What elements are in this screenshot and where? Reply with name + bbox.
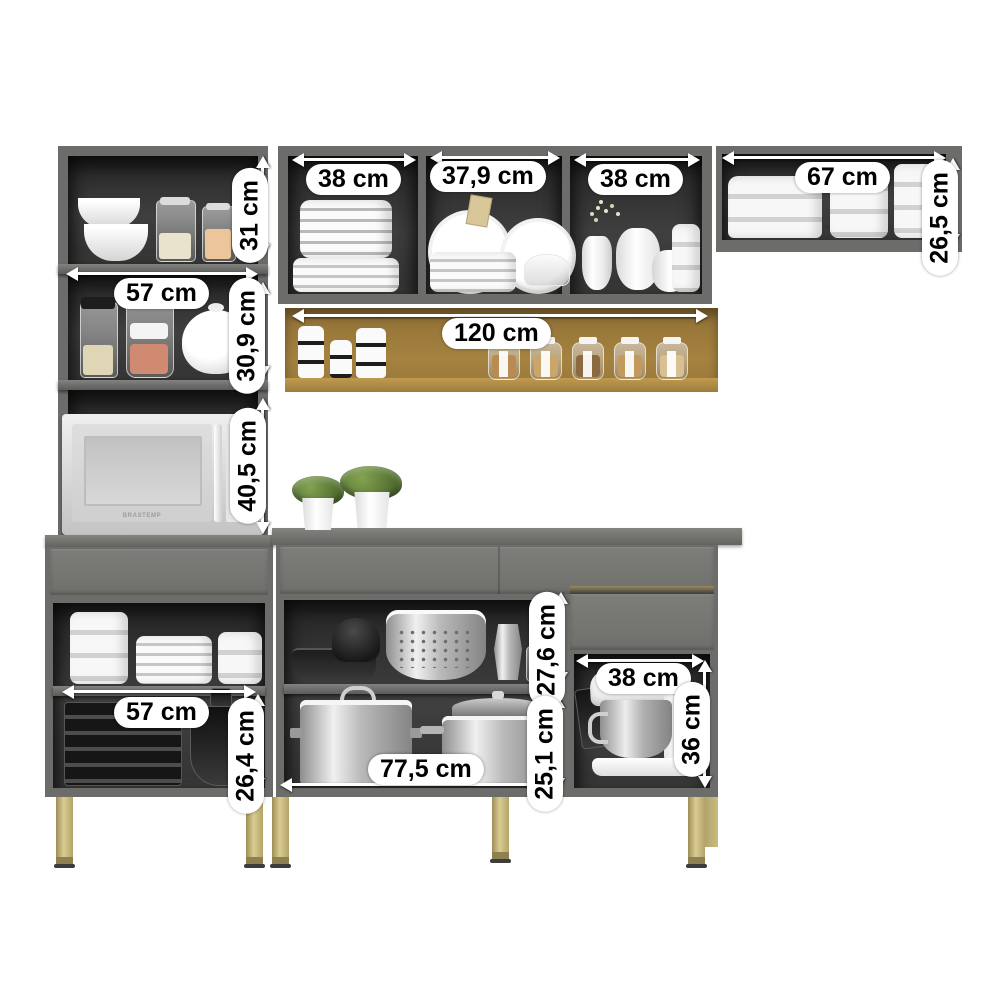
dimension-label: 40,5 cm <box>230 408 266 524</box>
microwave-window <box>84 436 202 506</box>
spice-jar <box>656 342 688 380</box>
jar-lid <box>206 203 230 210</box>
ruffled-bowl-stack <box>300 200 392 258</box>
canister-contents <box>130 344 168 374</box>
dimension-arrow <box>588 659 692 662</box>
plate-stack <box>293 258 399 292</box>
teapot-lid <box>208 303 224 312</box>
spice-label <box>625 351 634 377</box>
spice-jar-lid <box>663 337 681 344</box>
citrus-juicer <box>332 618 380 662</box>
wooden-shelf-board <box>285 378 718 392</box>
leg-foot <box>244 864 265 868</box>
spice-label <box>541 351 550 377</box>
microwave-brand-text: BRASTEMP <box>72 513 212 519</box>
jar-lid <box>160 197 190 205</box>
right-drawer-front <box>570 594 714 650</box>
dimension-arrow <box>304 314 696 317</box>
striped-canister <box>298 326 324 378</box>
base-middle-shelf <box>284 684 562 694</box>
striped-canister <box>330 340 352 378</box>
left-base-drawer-front <box>50 549 268 595</box>
dimension-label: 38 cm <box>306 164 401 195</box>
gold-leg <box>492 797 509 852</box>
stand-mixer-bowl <box>600 700 672 758</box>
dimension-label: 25,1 cm <box>527 696 563 812</box>
plant-pot <box>300 498 336 530</box>
butter-dish <box>524 254 570 286</box>
main-countertop <box>272 528 742 545</box>
plate-stack <box>430 252 516 292</box>
dimension-label: 31 cm <box>232 168 268 263</box>
jar-contents <box>205 229 231 259</box>
leg-foot <box>686 864 707 868</box>
leg-foot <box>490 859 511 863</box>
pot-handle <box>290 728 302 738</box>
jar-contents <box>159 233 191 259</box>
storage-jar <box>156 200 196 262</box>
leg-cap <box>246 857 263 864</box>
leg-cap <box>56 857 73 864</box>
spice-label <box>583 351 592 377</box>
dimension-label: 67 cm <box>795 162 890 193</box>
spice-jar-lid <box>579 337 597 344</box>
jar-contents <box>83 345 113 375</box>
microwave-door: BRASTEMP <box>72 424 212 522</box>
canister-band <box>130 323 168 339</box>
gold-leg <box>272 797 289 857</box>
lid-knob <box>492 691 504 699</box>
dimension-label: 26,4 cm <box>228 698 264 814</box>
dimension-label: 30,9 cm <box>229 278 265 394</box>
spice-label <box>667 351 676 377</box>
dimension-arrow <box>78 272 246 275</box>
dimension-arrow <box>304 158 404 161</box>
microwave-door-handle <box>214 424 222 522</box>
dimension-label: 120 cm <box>442 318 551 349</box>
kitchen-cabinet-product-image: BRASTEMP <box>0 0 1000 1000</box>
stand-mixer-bowl-handle <box>588 712 608 744</box>
colander <box>386 610 486 680</box>
spice-jar-lid <box>621 337 639 344</box>
plant-pot <box>352 492 392 528</box>
colander-holes <box>396 628 476 668</box>
dimension-arrow <box>74 690 244 693</box>
white-bowl-stack <box>70 612 128 684</box>
pasta-jar <box>80 302 118 378</box>
gold-leg <box>56 797 73 857</box>
gold-leg <box>688 797 705 857</box>
dimension-label: 37,9 cm <box>430 161 546 192</box>
jar-lid <box>81 297 115 309</box>
dimension-arrow <box>442 156 548 159</box>
dimension-label: 57 cm <box>114 278 209 309</box>
plate-stack <box>136 636 212 684</box>
dimension-arrow <box>734 156 934 159</box>
leg-foot <box>54 864 75 868</box>
drawer-seam <box>498 547 500 594</box>
small-bowl-stack <box>672 224 700 292</box>
spice-jar <box>572 342 604 380</box>
spice-jar <box>614 342 646 380</box>
leg-cap <box>272 857 289 864</box>
striped-canister <box>356 328 386 378</box>
flower-vase <box>582 236 612 290</box>
small-bowl-stack <box>218 632 262 684</box>
gold-leg-rear <box>704 797 718 847</box>
dimension-label: 57 cm <box>114 697 209 728</box>
right-drawer-groove <box>570 586 714 594</box>
pot-handle <box>420 726 444 734</box>
dimension-arrow <box>586 158 688 161</box>
dimension-label: 77,5 cm <box>368 754 484 785</box>
spice-label <box>499 351 508 377</box>
dimension-label: 36 cm <box>674 682 710 777</box>
flower-sprigs <box>596 206 600 210</box>
left-base-countertop <box>45 535 273 547</box>
dimension-label: 38 cm <box>588 164 683 195</box>
dimension-label: 26,5 cm <box>922 160 958 276</box>
dimension-label: 27,6 cm <box>529 592 565 708</box>
leg-foot <box>270 864 291 868</box>
leg-cap <box>492 852 509 859</box>
espresso-maker <box>494 624 522 680</box>
storage-jar <box>202 206 236 262</box>
leg-cap <box>688 857 705 864</box>
